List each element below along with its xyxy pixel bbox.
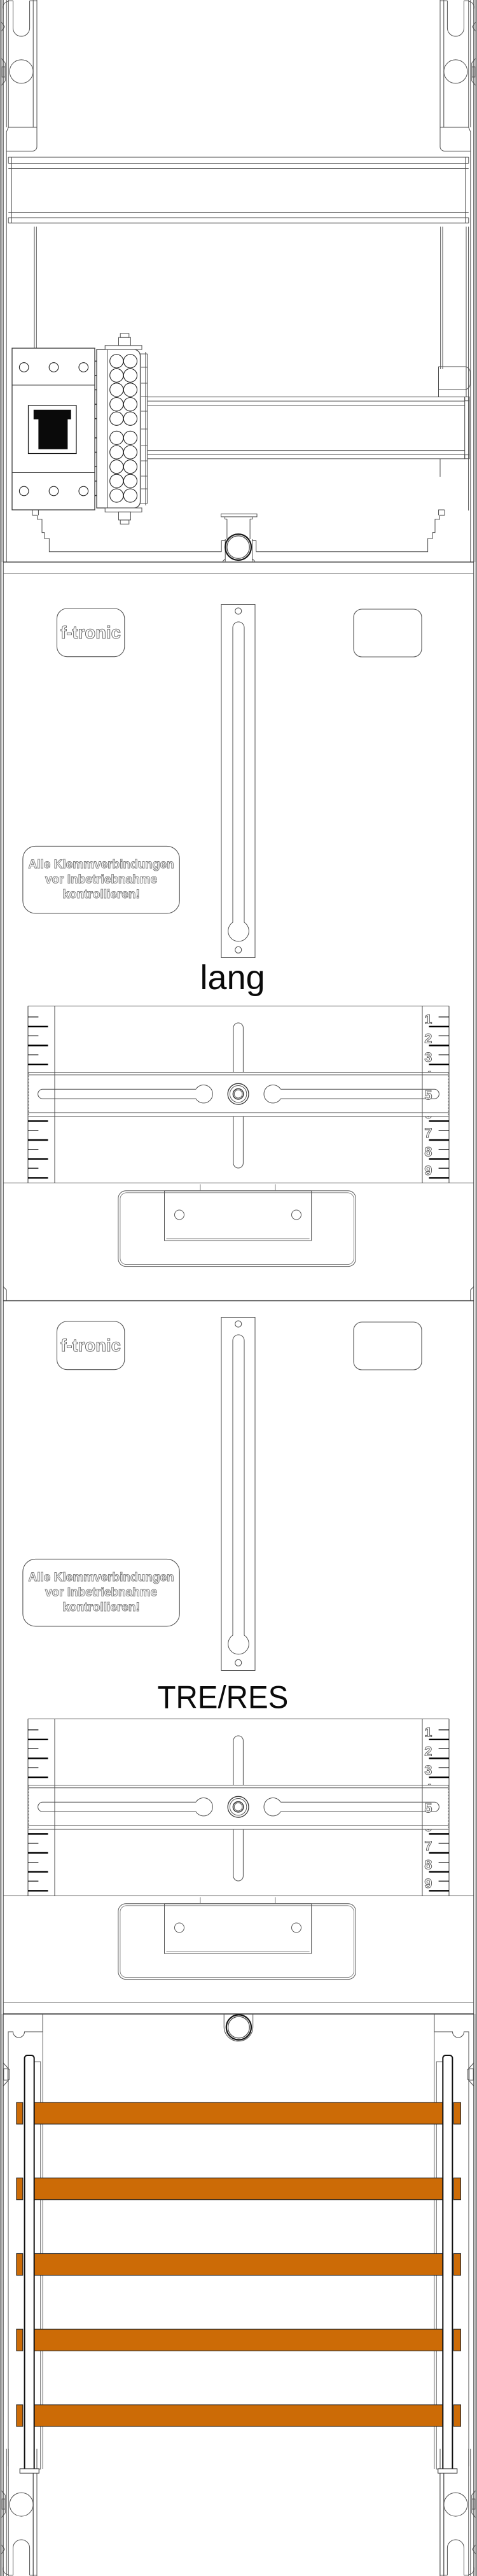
svg-text:lang: lang <box>200 959 265 997</box>
svg-text:TRE/RES: TRE/RES <box>157 1680 288 1715</box>
